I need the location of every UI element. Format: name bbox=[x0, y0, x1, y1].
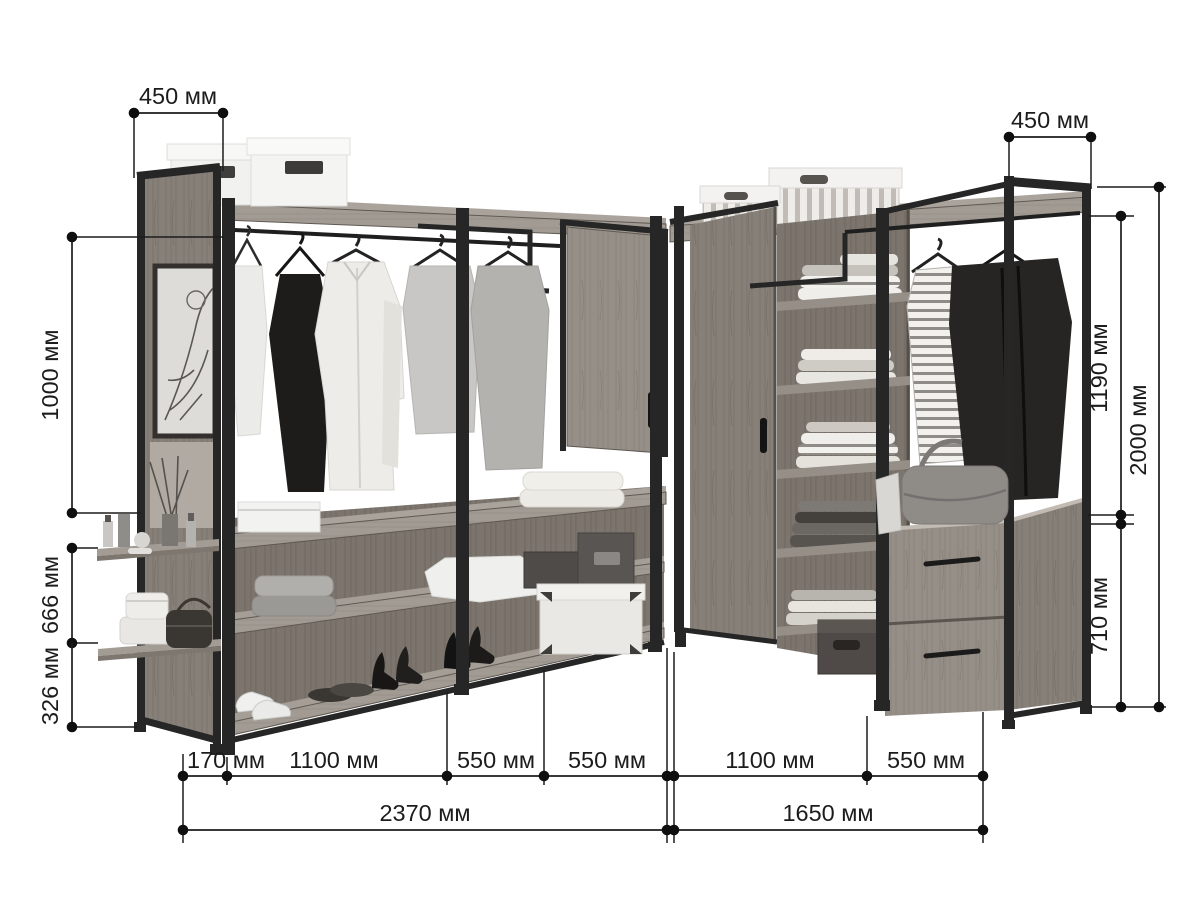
dim-bottom-totals: 2370 мм 1650 мм bbox=[178, 800, 989, 835]
striped-box-handle-slot bbox=[724, 192, 748, 200]
gray-sweater bbox=[471, 237, 549, 470]
perfume-bottle-cap bbox=[105, 515, 111, 522]
dimension-dot bbox=[67, 508, 78, 519]
dimension-dot bbox=[1116, 211, 1127, 222]
chest-side bbox=[1008, 499, 1086, 710]
hat-box bbox=[120, 617, 172, 644]
flip-flop bbox=[330, 683, 374, 697]
dimension-dot bbox=[129, 108, 140, 119]
folded-item bbox=[840, 254, 898, 265]
round-jar bbox=[134, 532, 150, 548]
hanging-clothes-right bbox=[907, 235, 1072, 502]
dimension-label: 710 мм bbox=[1086, 577, 1112, 655]
hanging-clothes-left bbox=[229, 226, 549, 492]
dimension-label: 450 мм bbox=[1011, 107, 1089, 133]
dim-right-710: 710 мм bbox=[1086, 519, 1134, 713]
dimension-label: 326 мм bbox=[37, 647, 63, 725]
dimension-dot bbox=[1154, 702, 1165, 713]
dimension-label: 1000 мм bbox=[37, 329, 63, 420]
folded-item bbox=[788, 601, 880, 612]
dimension-label: 2000 мм bbox=[1125, 384, 1151, 475]
frame-post bbox=[222, 198, 235, 746]
frame-foot bbox=[675, 632, 686, 647]
hat-boxes bbox=[120, 593, 172, 644]
dimension-label: 1100 мм bbox=[725, 747, 814, 773]
dimension-dot bbox=[218, 108, 229, 119]
trunk-body bbox=[540, 592, 642, 654]
perfume-bottle bbox=[186, 520, 196, 547]
diffuser-vase bbox=[162, 514, 178, 546]
perfume-bottle bbox=[118, 514, 130, 547]
white-trunk-box bbox=[537, 584, 645, 654]
dimension-label: 2370 мм bbox=[379, 800, 470, 826]
dimension-dot bbox=[1116, 702, 1127, 713]
dimension-label: 170 мм bbox=[187, 747, 265, 773]
dimension-dot bbox=[67, 232, 78, 243]
cosmetic-tube bbox=[128, 548, 152, 554]
dimension-label: 666 мм bbox=[37, 556, 63, 634]
dimension-label: 1190 мм bbox=[1086, 323, 1112, 412]
dimension-dot bbox=[862, 771, 873, 782]
red-box-handle-slot bbox=[833, 640, 860, 650]
white-shirt bbox=[315, 235, 404, 490]
dimension-dot bbox=[67, 722, 78, 733]
folded-towel bbox=[520, 489, 624, 507]
dimension-label: 450 мм bbox=[139, 83, 217, 109]
striped-box-handle-slot bbox=[800, 175, 828, 184]
striped-box-lid bbox=[769, 168, 902, 188]
left-side-panel bbox=[134, 166, 224, 755]
dimension-label: 1650 мм bbox=[782, 800, 873, 826]
dimension-dot bbox=[978, 771, 989, 782]
side-frame-top-bar bbox=[1004, 181, 1091, 188]
dimension-dot bbox=[67, 543, 78, 554]
dark-box bbox=[524, 552, 582, 588]
leaning-folder bbox=[876, 473, 901, 534]
cabinet-door bbox=[567, 227, 661, 453]
frame-foot bbox=[454, 684, 469, 695]
dark-box-label bbox=[594, 552, 620, 565]
red-box bbox=[818, 620, 878, 674]
dimension-label: 550 мм bbox=[568, 747, 646, 773]
dim-top-right-450: 450 мм bbox=[1004, 107, 1097, 189]
sweater-body bbox=[471, 266, 549, 470]
dimension-dot bbox=[178, 825, 189, 836]
frame-post bbox=[456, 208, 469, 686]
dimension-dot bbox=[1004, 132, 1015, 143]
white-flat-box bbox=[238, 502, 320, 532]
dimension-dot bbox=[442, 771, 453, 782]
exterior-shelf-lower bbox=[98, 593, 221, 661]
folded-blanket bbox=[252, 596, 336, 616]
left-wardrobe-unit bbox=[97, 138, 668, 755]
door-handle bbox=[760, 418, 767, 453]
dimension-dot bbox=[1086, 132, 1097, 143]
red-box-lid bbox=[818, 620, 878, 633]
right-wardrobe-unit bbox=[670, 168, 1092, 729]
dim-left-666: 666 мм bbox=[37, 543, 98, 649]
frame-post bbox=[650, 216, 662, 644]
wardrobe-door bbox=[670, 203, 778, 647]
dimension-label: 550 мм bbox=[887, 747, 965, 773]
drawer-chest bbox=[885, 499, 1086, 716]
diagram-canvas: 450 мм 1000 мм 666 мм 326 мм bbox=[0, 0, 1200, 900]
dimension-dot bbox=[669, 825, 680, 836]
wardrobe-dimension-diagram: 450 мм 1000 мм 666 мм 326 мм bbox=[0, 0, 1200, 900]
hanger-icon bbox=[276, 233, 324, 276]
perfume-bottle bbox=[103, 521, 113, 547]
door-frame-post bbox=[674, 206, 684, 632]
folded-towel bbox=[523, 472, 623, 490]
perfume-bottle-cap bbox=[188, 513, 194, 521]
hanger-icon bbox=[330, 235, 382, 264]
dimension-label: 1100 мм bbox=[289, 747, 378, 773]
dimension-dot bbox=[669, 771, 680, 782]
dimension-dot bbox=[978, 825, 989, 836]
folded-blanket bbox=[255, 576, 333, 596]
dimension-dot bbox=[1116, 519, 1127, 530]
trunk-lid bbox=[537, 584, 645, 600]
storage-box-handle-slot bbox=[285, 161, 323, 174]
handbag-body bbox=[166, 610, 212, 648]
shirt-sleeve bbox=[382, 300, 402, 468]
frame-post bbox=[876, 208, 889, 700]
frame-foot bbox=[648, 642, 662, 652]
dimension-dot bbox=[1154, 182, 1165, 193]
storage-box-lid bbox=[247, 138, 350, 155]
hat-box bbox=[126, 593, 168, 619]
frame-foot bbox=[1002, 720, 1015, 729]
dimension-label: 550 мм bbox=[457, 747, 535, 773]
folded-item bbox=[791, 590, 877, 600]
art-frame bbox=[155, 266, 215, 436]
frame-foot bbox=[874, 700, 890, 711]
frame-post bbox=[1004, 176, 1014, 722]
art-frame-border bbox=[155, 266, 215, 436]
dimension-dot bbox=[539, 771, 550, 782]
